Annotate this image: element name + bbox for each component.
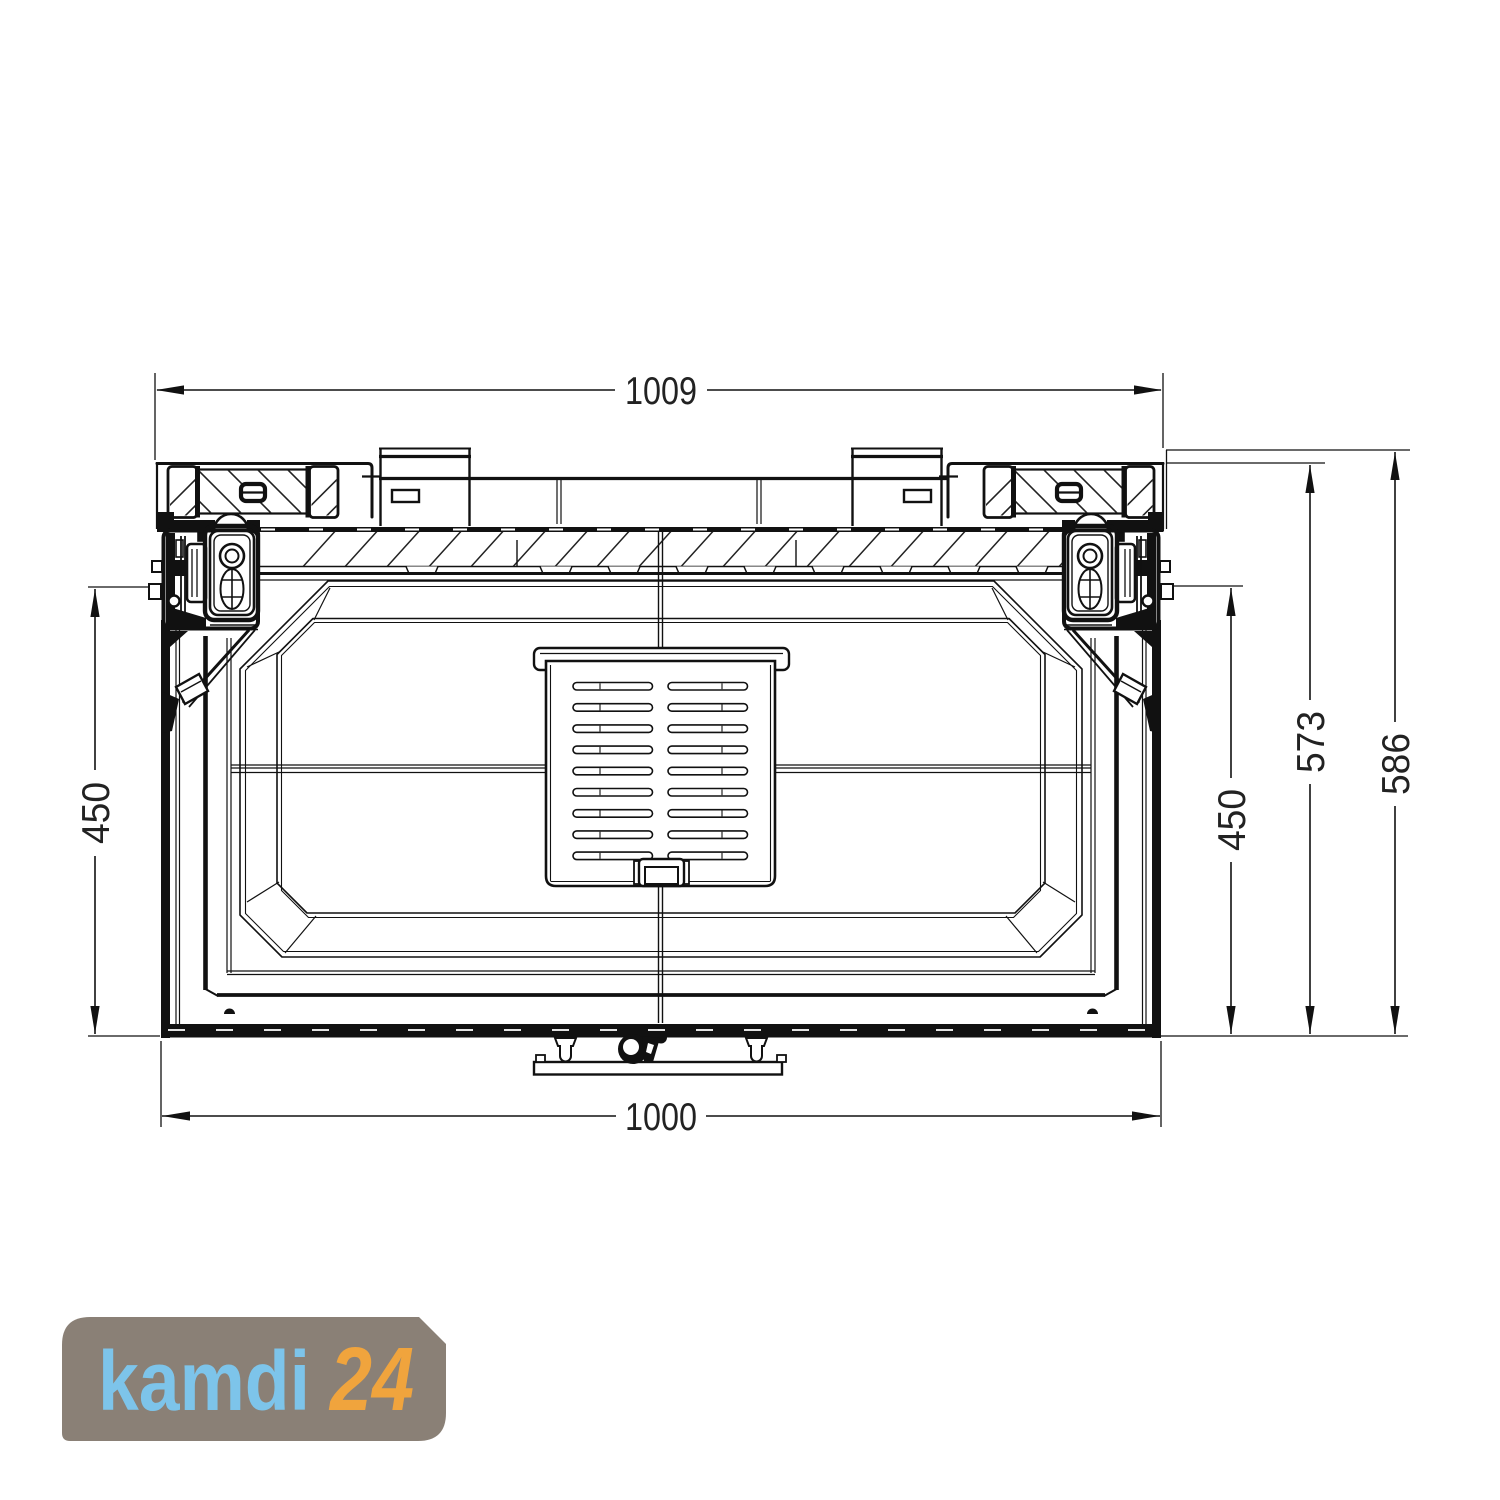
svg-text:586: 586 [1375,733,1418,795]
svg-text:kamdi: kamdi [98,1334,310,1428]
svg-text:450: 450 [1211,789,1254,851]
svg-text:573: 573 [1290,711,1333,773]
svg-text:1009: 1009 [625,370,697,413]
svg-text:450: 450 [75,782,118,844]
svg-text:24: 24 [328,1330,414,1430]
svg-text:1000: 1000 [625,1096,697,1139]
